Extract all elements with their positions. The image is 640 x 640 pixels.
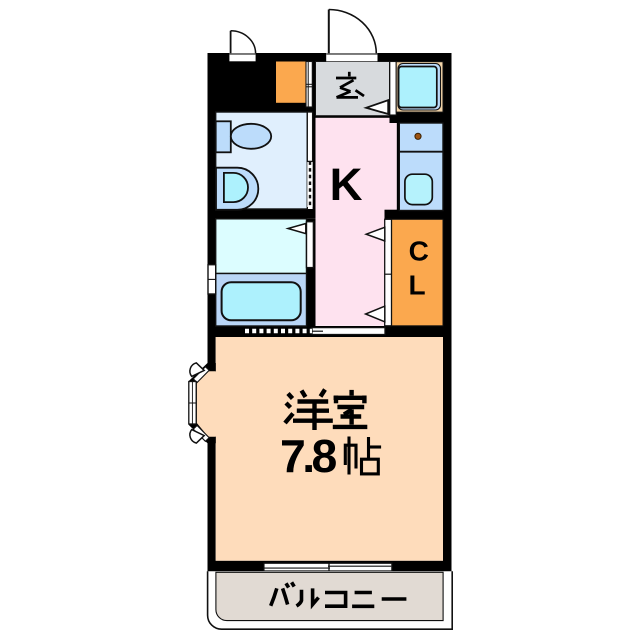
- svg-text:K: K: [330, 159, 363, 210]
- svg-text:L: L: [408, 269, 425, 300]
- svg-text:7.8: 7.8: [280, 430, 336, 482]
- svg-text:C: C: [409, 235, 429, 266]
